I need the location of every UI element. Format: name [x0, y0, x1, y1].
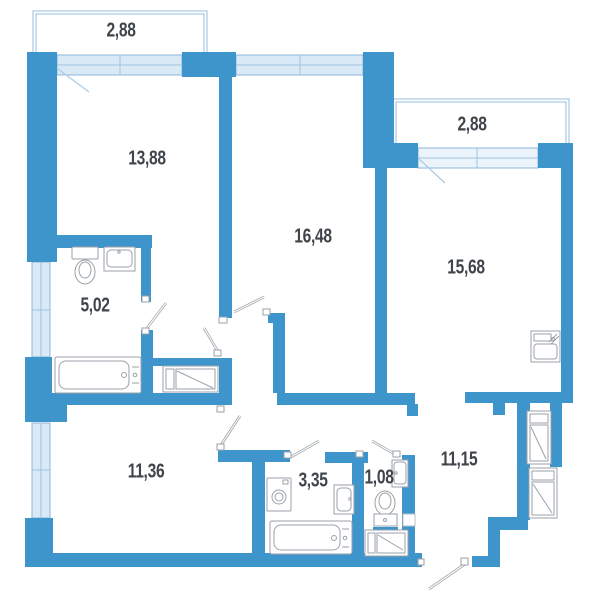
- window-left-lower: [32, 423, 50, 518]
- wardrobe-fixture-3: [365, 530, 408, 556]
- wardrobe-fixture-1: [527, 411, 551, 464]
- bathtub-fixture-bathroom-3-35: [270, 521, 352, 554]
- room-label-11-36: 11,36: [128, 461, 165, 484]
- window-top-center: [236, 55, 363, 75]
- wardrobe-fixture-2: [529, 468, 557, 518]
- bathtub-fixture-bathroom-5-02: [55, 357, 141, 393]
- kitchen-sink-fixture-15-68: [531, 331, 560, 362]
- toilet-fixture-bathroom-5-02: [72, 247, 98, 284]
- closet-fixture-hall: [163, 366, 218, 392]
- room-label-1-08: 1,08: [364, 467, 393, 490]
- entry-door-swing: [429, 564, 465, 589]
- room-label-5-02: 5,02: [80, 295, 109, 318]
- door-swing-bathroom-5-02: [147, 303, 166, 328]
- sink-fixture-wc-1-08: [392, 460, 408, 487]
- room-label-3-35: 3,35: [298, 470, 327, 493]
- washing-machine-fixture-3-35: [267, 478, 291, 511]
- sink-fixture-bathroom-5-02: [104, 247, 135, 271]
- room-label-balcony-right: 2,88: [457, 114, 486, 137]
- floor-plan: 2,88 13,88 2,88 16,48 15,68 5,02 11,36 3…: [0, 0, 600, 600]
- door-swing-bathroom-3-35: [291, 441, 319, 457]
- room-label-11-15: 11,15: [441, 449, 478, 472]
- toilet-fixture-wc-1-08: [374, 491, 397, 526]
- sink-fixture-bathroom-3-35: [334, 485, 354, 514]
- door-swing-room-16-48: [234, 297, 264, 312]
- room-label-balcony-top: 2,88: [106, 20, 135, 43]
- wall-niche: [403, 514, 415, 526]
- door-swing-room-11-36: [221, 416, 240, 445]
- room-label-16-48: 16,48: [294, 226, 331, 249]
- window-top-left: [57, 55, 182, 75]
- room-label-15-68: 15,68: [447, 257, 484, 280]
- window-left-upper: [32, 262, 50, 357]
- window-right-balcony: [418, 148, 538, 168]
- room-label-13-88: 13,88: [128, 148, 165, 171]
